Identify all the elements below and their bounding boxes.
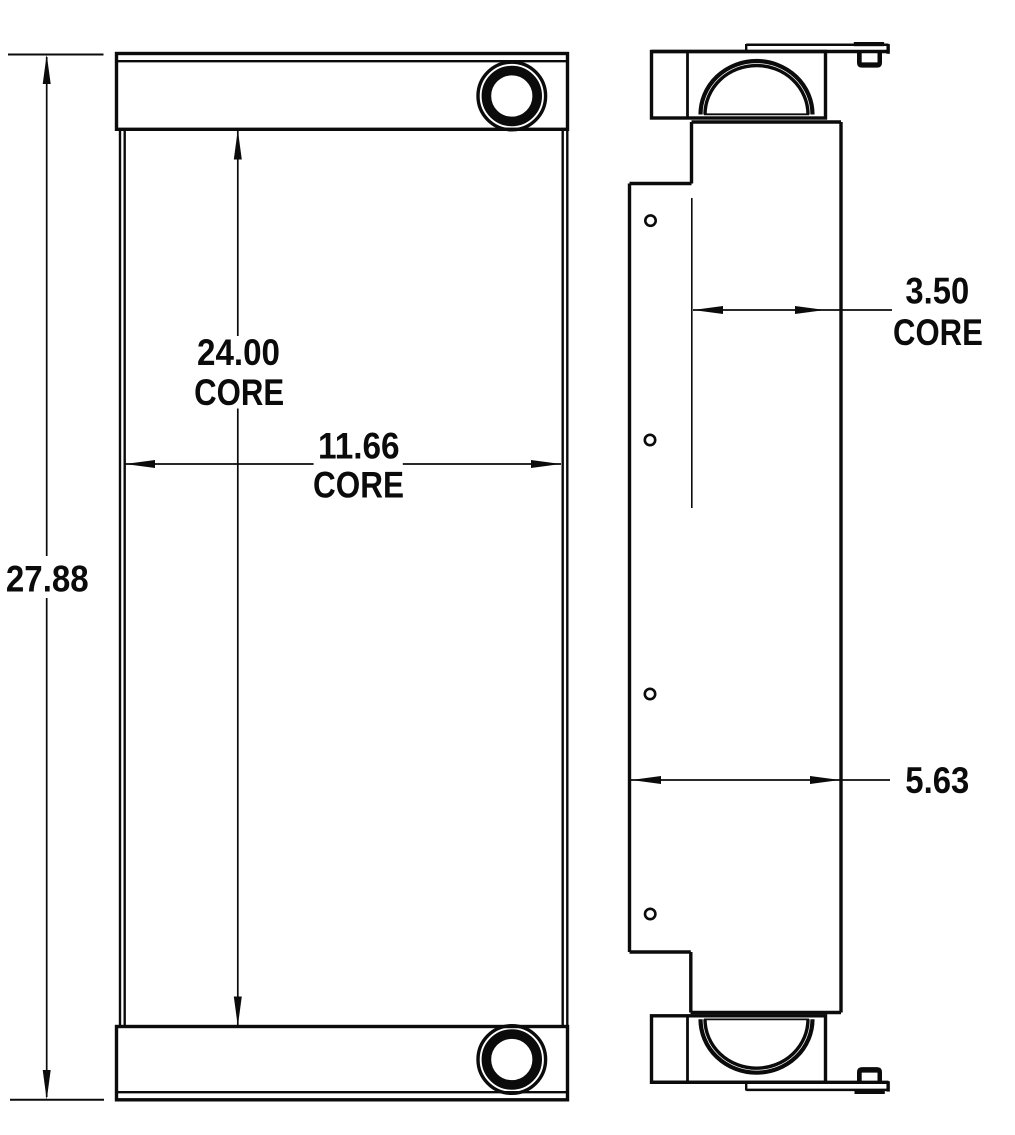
svg-text:24.00: 24.00 [197,332,280,373]
svg-text:CORE: CORE [313,465,404,506]
svg-text:CORE: CORE [893,312,983,353]
svg-text:5.63: 5.63 [905,760,969,801]
svg-text:3.50: 3.50 [905,270,969,311]
svg-text:CORE: CORE [194,372,284,413]
svg-text:11.66: 11.66 [318,426,400,467]
svg-text:27.88: 27.88 [6,558,89,599]
